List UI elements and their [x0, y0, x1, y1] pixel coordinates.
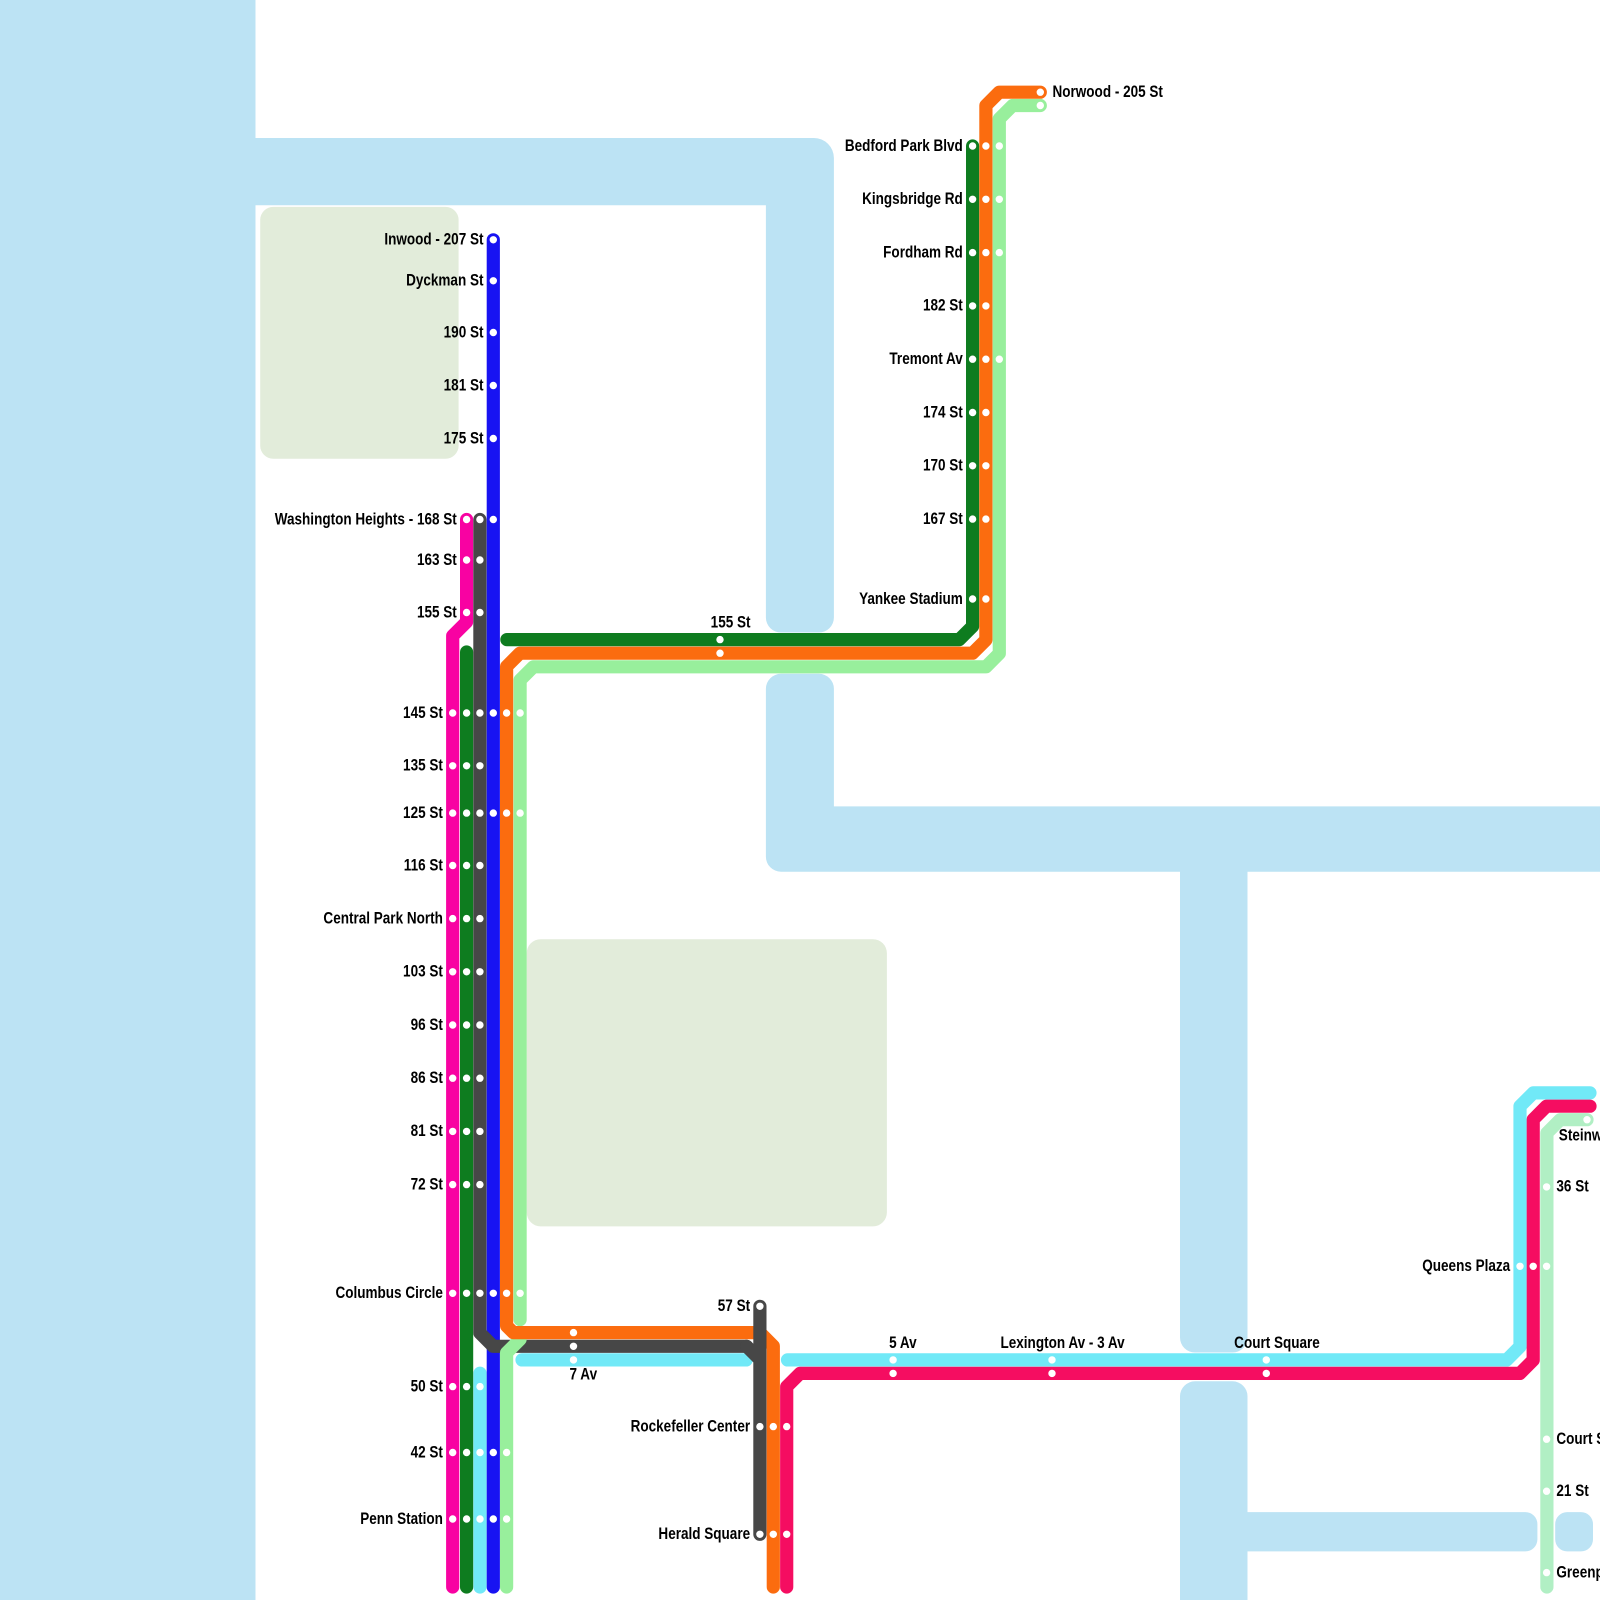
svg-text:155 St: 155 St [417, 603, 457, 622]
svg-text:Dyckman St: Dyckman St [406, 271, 483, 290]
svg-text:190 St: 190 St [444, 323, 484, 342]
svg-text:Penn Station: Penn Station [360, 1510, 443, 1529]
svg-text:145 St: 145 St [403, 704, 443, 723]
svg-text:57 St: 57 St [718, 1297, 750, 1316]
svg-text:167 St: 167 St [923, 510, 963, 529]
svg-text:135 St: 135 St [403, 756, 443, 775]
svg-text:116 St: 116 St [404, 856, 443, 875]
svg-text:182 St: 182 St [923, 296, 963, 315]
svg-text:Herald Square: Herald Square [658, 1525, 750, 1544]
svg-text:86 St: 86 St [411, 1069, 443, 1088]
svg-text:174 St: 174 St [923, 403, 963, 422]
svg-text:Inwood - 207 St: Inwood - 207 St [384, 230, 483, 249]
svg-text:72 St: 72 St [411, 1175, 443, 1194]
svg-text:Rockefeller Center: Rockefeller Center [631, 1417, 751, 1436]
svg-text:175 St: 175 St [444, 429, 484, 448]
svg-text:7 Av: 7 Av [570, 1365, 598, 1384]
svg-text:170 St: 170 St [923, 456, 963, 475]
svg-text:Queens Plaza: Queens Plaza [1422, 1257, 1510, 1276]
svg-text:163 St: 163 St [417, 551, 457, 570]
svg-text:96 St: 96 St [411, 1016, 443, 1035]
svg-text:50 St: 50 St [411, 1377, 443, 1396]
svg-text:Columbus Circle: Columbus Circle [335, 1284, 442, 1303]
svg-text:155 St: 155 St [711, 613, 751, 632]
svg-text:81 St: 81 St [411, 1122, 443, 1141]
svg-text:Court Square: Court Square [1234, 1334, 1320, 1353]
svg-text:21 St: 21 St [1556, 1482, 1588, 1501]
svg-text:Lexington Av - 3 Av: Lexington Av - 3 Av [1000, 1334, 1125, 1353]
svg-text:125 St: 125 St [403, 804, 443, 823]
svg-text:Washington Heights - 168 St: Washington Heights - 168 St [275, 510, 457, 529]
svg-text:Court Square: Court Square [1556, 1430, 1600, 1449]
svg-text:103 St: 103 St [403, 962, 443, 981]
svg-text:Tremont Av: Tremont Av [889, 350, 963, 369]
svg-text:Steinway St: Steinway St [1559, 1126, 1600, 1145]
svg-text:42 St: 42 St [411, 1443, 443, 1462]
svg-text:Kingsbridge Rd: Kingsbridge Rd [862, 190, 963, 209]
svg-text:Yankee Stadium: Yankee Stadium [859, 590, 963, 609]
svg-text:Fordham Rd: Fordham Rd [883, 243, 963, 262]
svg-text:Bedford Park Blvd: Bedford Park Blvd [845, 137, 963, 156]
svg-text:36 St: 36 St [1556, 1177, 1588, 1196]
svg-text:181 St: 181 St [444, 376, 484, 395]
svg-text:Central Park North: Central Park North [323, 909, 442, 928]
svg-text:5 Av: 5 Av [889, 1334, 917, 1353]
svg-text:Greenpoint Av: Greenpoint Av [1556, 1563, 1600, 1582]
svg-text:Norwood - 205 St: Norwood - 205 St [1053, 83, 1163, 102]
